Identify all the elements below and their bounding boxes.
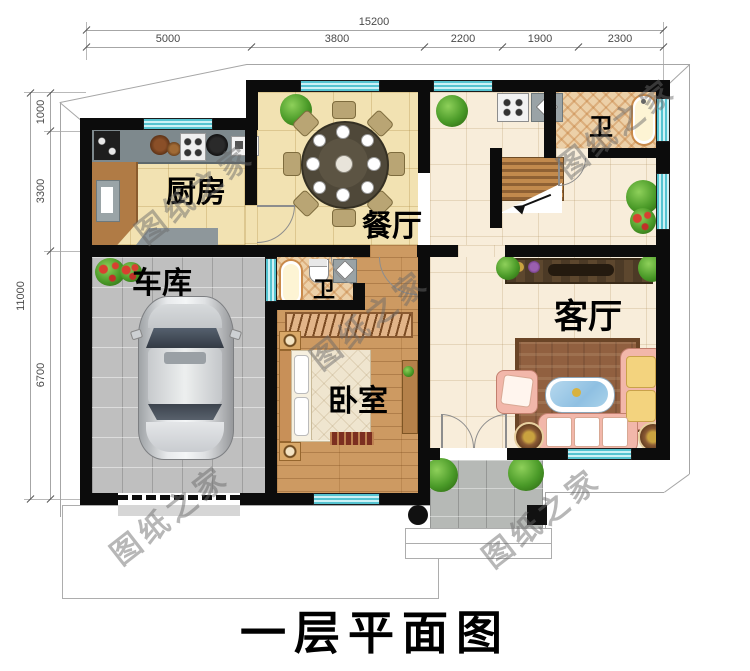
- wall-garage-bottom-a: [80, 493, 118, 505]
- dim-left-total: 11000: [15, 266, 27, 326]
- hall-window: [433, 80, 493, 92]
- car: [138, 296, 234, 460]
- car-hood: [148, 304, 222, 328]
- wall-mid-horizontal-b: [417, 245, 458, 257]
- entry-door-right-leaf: [505, 414, 507, 448]
- car-sunroof: [164, 352, 206, 364]
- plate: [313, 134, 326, 147]
- dining-chair: [387, 152, 405, 176]
- stair-window: [656, 173, 670, 230]
- plate: [361, 134, 374, 147]
- wall-stair-left: [490, 148, 502, 228]
- dim-top-seg-1: 5000: [128, 33, 208, 45]
- plate: [361, 181, 374, 194]
- room-label-bath-mid: 卫: [313, 279, 335, 301]
- laundry-stove: [497, 93, 529, 122]
- hall-plant: [436, 95, 468, 127]
- sofa-cushion: [546, 417, 572, 447]
- dining-chair: [332, 209, 356, 227]
- dim-line-top-total: [86, 30, 664, 31]
- room-label-living: 客厅: [554, 300, 622, 334]
- toilet-tank: [309, 259, 327, 267]
- bedroom-window: [313, 493, 380, 505]
- plate: [306, 157, 320, 171]
- dim-top-seg-2: 3800: [297, 33, 377, 45]
- roof-outline-right: [689, 64, 690, 474]
- bath-mid-door-arc: [331, 257, 359, 285]
- nightstand: [279, 331, 301, 350]
- dining-window: [300, 80, 380, 92]
- dining-chair: [332, 101, 356, 119]
- plate: [336, 125, 350, 139]
- dim-top-seg-3: 2200: [423, 33, 503, 45]
- loveseat-cushion: [626, 356, 656, 388]
- dim-top-total: 15200: [334, 16, 414, 28]
- kitchen-window: [143, 118, 213, 130]
- car-trunk: [146, 422, 224, 452]
- bedroom-door-threshold: [370, 245, 417, 257]
- roof-outline-left: [60, 102, 61, 517]
- entry-door-left-arc: [441, 414, 474, 448]
- wall-living-bottom-a: [430, 448, 440, 460]
- bed-pillow: [294, 397, 309, 436]
- kitchen-door-leaf: [257, 205, 295, 207]
- armchair-cushion: [500, 374, 534, 408]
- wall-living-bottom-c: [632, 448, 670, 460]
- floor-plan-canvas: 15200 5000 3800 2200 1900 2300 11000 100…: [0, 0, 750, 671]
- plate: [313, 181, 326, 194]
- roof-outline-top: [247, 64, 689, 65]
- dim-line-left-segments: [50, 92, 51, 499]
- bath-mid-window: [265, 258, 277, 302]
- roof-outline-diagonal-topleft: [60, 64, 247, 103]
- wall-mid-horizontal-a: [80, 245, 370, 257]
- bathtub-mid-inner: [283, 264, 299, 302]
- bed-runner: [330, 432, 374, 445]
- nightstand: [279, 442, 301, 461]
- wall-living-top: [505, 245, 670, 257]
- entry-door-right-arc: [474, 414, 507, 448]
- porch-bush-right: [508, 455, 544, 491]
- bed-pillow: [294, 355, 309, 394]
- entry-door-left-leaf: [441, 414, 443, 448]
- living-plant-left: [496, 256, 520, 280]
- kitchen-sink: [96, 180, 120, 222]
- page-title: 一层平面图: [0, 597, 750, 663]
- kitchen-door-arc: [257, 205, 295, 243]
- tv-console-center: [548, 264, 614, 276]
- kitchen-bowl: [167, 142, 181, 156]
- car-windshield: [146, 328, 224, 348]
- plate: [367, 157, 381, 171]
- dim-extension-line: [24, 92, 86, 93]
- dim-top-seg-5: 2300: [580, 33, 660, 45]
- wall-left: [80, 118, 92, 505]
- dim-left-seg-1: 1000: [35, 86, 47, 138]
- roof-outline-corner-bottomright: [664, 474, 690, 493]
- car-rear-window: [148, 404, 222, 420]
- wall-dining-hall: [418, 88, 430, 173]
- stair-window-plant-flowers: [630, 208, 656, 234]
- room-label-garage: 车库: [132, 269, 192, 299]
- room-label-dining: 餐厅: [362, 212, 422, 242]
- bedroom-console-plant: [403, 366, 414, 377]
- wall-bedroom-bottom: [380, 493, 430, 505]
- loveseat-cushion: [626, 390, 656, 422]
- kitchen-cooktop: [94, 131, 120, 160]
- sofa-cushion: [602, 417, 628, 447]
- wall-living-bottom-b: [507, 448, 567, 460]
- dim-left-seg-3: 6700: [35, 349, 47, 401]
- kitchen-door-threshold: [245, 205, 257, 245]
- plate: [336, 188, 350, 202]
- tv-console-flower: [528, 261, 540, 273]
- wall-garage-bottom-b: [240, 493, 313, 505]
- dim-top-seg-4: 1900: [500, 33, 580, 45]
- coffee-table-decor: [572, 388, 581, 397]
- dim-extension-line: [24, 499, 86, 500]
- sofa-cushion: [574, 417, 600, 447]
- dining-table-center: [335, 155, 353, 173]
- room-label-bedroom: 卧室: [328, 387, 388, 417]
- dim-line-left-total: [30, 92, 31, 499]
- hall-passage-floor: [458, 245, 505, 257]
- dining-chair: [283, 152, 301, 176]
- dim-left-seg-2: 3300: [35, 165, 47, 217]
- porch-column-round: [408, 505, 428, 525]
